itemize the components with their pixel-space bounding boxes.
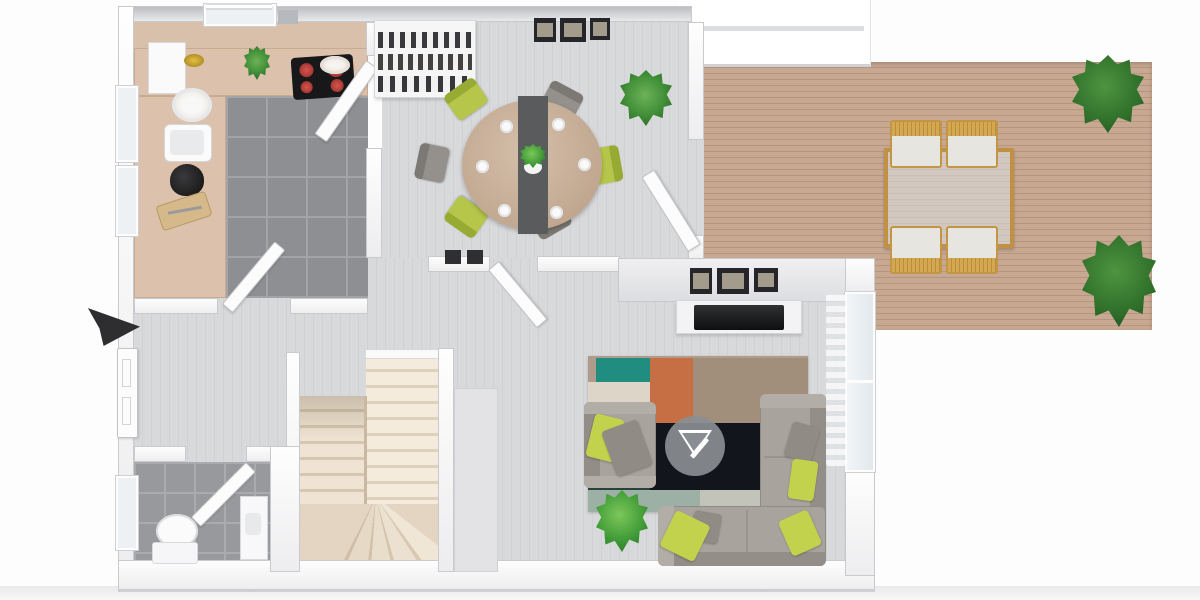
deck-chair-back xyxy=(892,122,940,136)
stairs-partition xyxy=(454,388,498,572)
stair-flight-right xyxy=(366,356,438,504)
stair-flight-divider xyxy=(364,396,367,504)
deck-chair-back xyxy=(892,258,940,272)
burner xyxy=(299,63,314,78)
stair-flight-left xyxy=(300,396,366,504)
sheer-curtain xyxy=(826,294,846,466)
living-glass-door xyxy=(845,292,875,472)
washbasin-cabinet xyxy=(240,496,268,560)
wall-dining-right-upper xyxy=(688,22,704,140)
deck-chair xyxy=(890,120,942,168)
wall-wc-right xyxy=(270,446,300,572)
wall-living-right-upper xyxy=(845,258,875,292)
art-canvas xyxy=(537,23,552,38)
rug-patch-orange xyxy=(650,358,693,424)
sink-bowl xyxy=(170,130,204,155)
wall-wc-top-left xyxy=(134,446,186,462)
burner xyxy=(330,79,344,93)
wall-hall-living xyxy=(537,256,620,272)
wall-panel-dark xyxy=(467,250,483,264)
wall-living-right-lower xyxy=(845,468,875,576)
place-plate xyxy=(578,158,591,171)
wall-kitchen-dining-lower xyxy=(366,148,382,258)
entrance-arrow xyxy=(88,302,140,346)
picture-frame xyxy=(717,268,749,294)
kitchen-sink xyxy=(164,124,212,162)
deck-chair xyxy=(890,226,942,274)
stair-shadow xyxy=(300,396,366,441)
wall-kitchen-bottom-left xyxy=(134,298,218,314)
kitchen-window-left-2 xyxy=(116,166,138,236)
bookshelf-row xyxy=(378,54,472,70)
tv-pictures xyxy=(690,268,790,296)
rug-patch-teal xyxy=(596,358,650,382)
serving-plate xyxy=(172,88,212,122)
sofa-arm xyxy=(760,394,826,408)
deck-chair xyxy=(946,120,998,168)
art-frame xyxy=(560,18,586,42)
window-awning xyxy=(206,0,272,10)
deck-door-threshold xyxy=(688,140,704,235)
front-door-panel xyxy=(122,397,131,425)
wall-panel-dark xyxy=(445,250,461,264)
basin xyxy=(245,513,261,535)
picture-canvas xyxy=(693,273,708,289)
chimney-block xyxy=(278,10,298,24)
kitchen-tile-floor xyxy=(226,96,368,298)
deck-chair xyxy=(946,226,998,274)
knife xyxy=(168,206,202,215)
fridge-cabinet xyxy=(148,42,186,94)
deck-chair-back xyxy=(948,122,996,136)
armchair-arm xyxy=(584,402,656,414)
picture-frame xyxy=(690,268,712,294)
kitchen-area xyxy=(134,22,368,298)
roof-block xyxy=(678,0,871,67)
art-frame xyxy=(534,18,556,42)
burner xyxy=(300,81,313,94)
art-canvas xyxy=(564,23,582,38)
toilet-tank xyxy=(152,542,198,564)
place-plate xyxy=(500,120,513,133)
front-door xyxy=(117,348,138,438)
kitchen-window-left-1 xyxy=(116,86,138,162)
pastry-plate xyxy=(320,56,350,74)
wall-stairs-right xyxy=(438,348,454,572)
gold-fruit-bowl xyxy=(184,54,204,67)
place-plate xyxy=(550,206,563,219)
armchair-arm xyxy=(584,476,656,488)
sofa-back xyxy=(810,394,826,522)
dining-wall-art xyxy=(534,18,612,44)
glass-door-mullion xyxy=(847,380,873,383)
bookshelf-row xyxy=(378,32,472,48)
floor-plan-canvas xyxy=(0,0,1200,600)
roof-edge-line xyxy=(686,26,864,31)
staircase xyxy=(300,350,438,572)
watermark-badge xyxy=(665,416,725,476)
sofa-cushion-line xyxy=(746,510,748,552)
picture-frame xyxy=(754,268,778,292)
wall-kitchen-bottom-right xyxy=(290,298,368,314)
wc-window-left xyxy=(116,476,138,550)
picture-canvas xyxy=(758,273,775,288)
place-plate xyxy=(476,160,489,173)
art-frame xyxy=(590,18,610,40)
tv-screen xyxy=(694,305,784,330)
entrance-arrow-body xyxy=(88,302,140,346)
place-plate xyxy=(552,118,565,131)
stair-landing-edge xyxy=(366,350,438,358)
front-door-panel xyxy=(122,359,131,387)
place-plate xyxy=(498,204,511,217)
picture-canvas xyxy=(722,273,744,289)
deck-chair-back xyxy=(948,258,996,272)
art-canvas xyxy=(593,22,607,36)
throw-pillow-green xyxy=(787,458,818,501)
